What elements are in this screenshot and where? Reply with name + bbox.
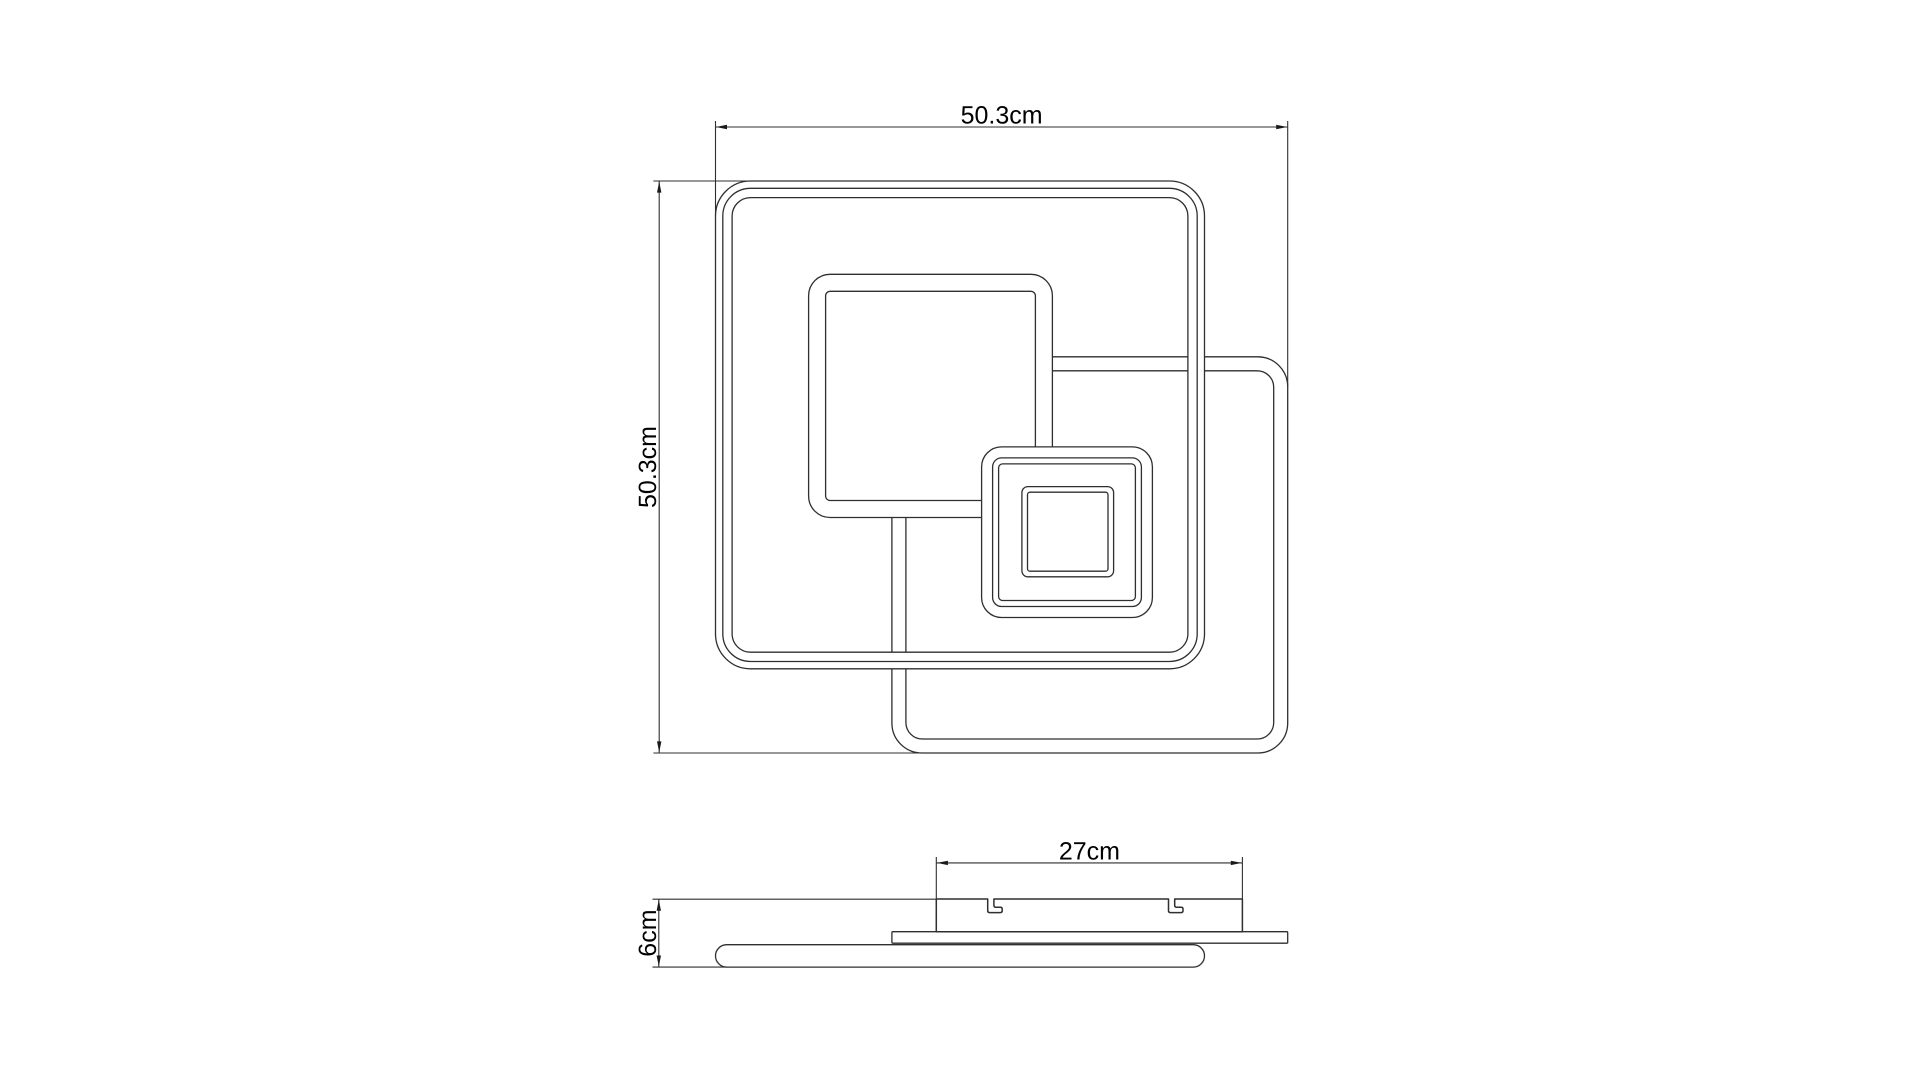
svg-text:27cm: 27cm xyxy=(1059,838,1120,866)
svg-text:6cm: 6cm xyxy=(634,909,662,956)
svg-text:50.3cm: 50.3cm xyxy=(634,426,662,508)
svg-text:50.3cm: 50.3cm xyxy=(961,102,1043,130)
